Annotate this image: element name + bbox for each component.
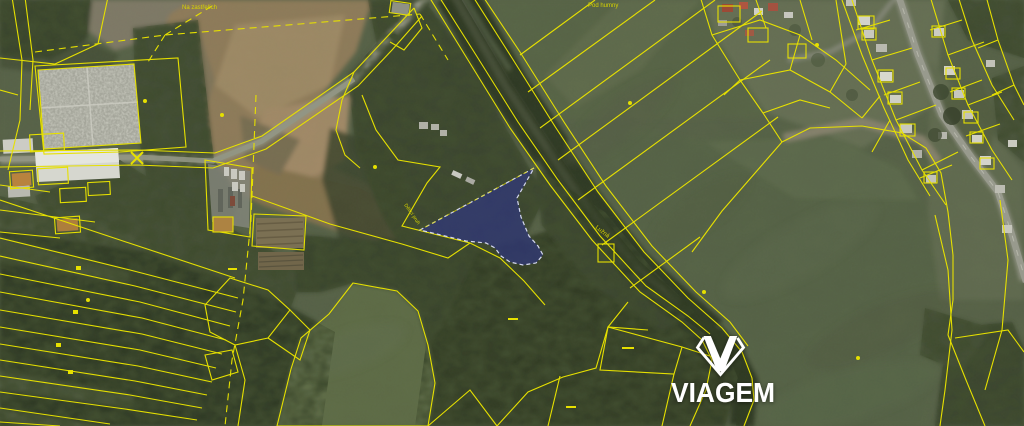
svg-text:Pod humny: Pod humny <box>588 3 618 9</box>
svg-text:VIAGEM: VIAGEM <box>671 377 775 408</box>
svg-text:Na zastřelích: Na zastřelích <box>182 5 217 11</box>
